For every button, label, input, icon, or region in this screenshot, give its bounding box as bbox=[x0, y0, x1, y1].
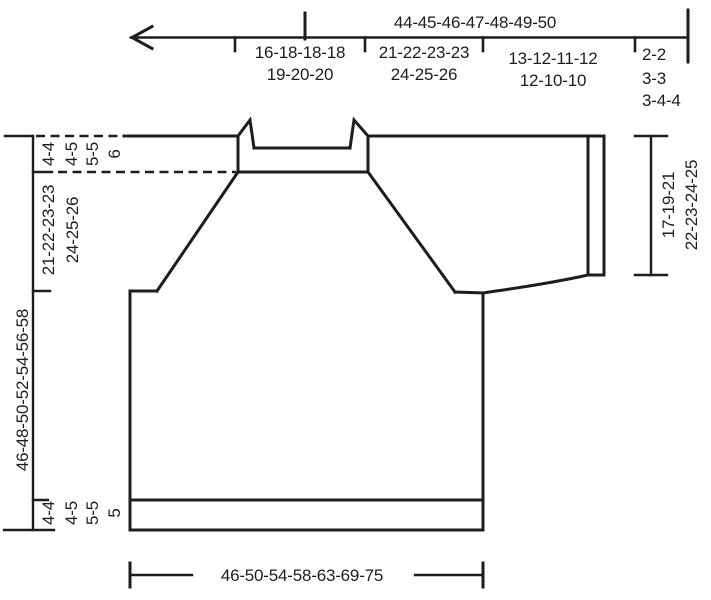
sleeve-measure-part2-label: 22-23-24-25 bbox=[682, 160, 701, 250]
neck-depth-part2-label: 4-5 bbox=[62, 142, 81, 166]
total-length-label: 46-48-50-52-54-56-58 bbox=[13, 309, 32, 471]
right-measure-bar: 17-19-21 22-23-24-25 bbox=[635, 136, 701, 275]
garment-outline bbox=[124, 120, 604, 530]
pattern-schematic-page: 44-45-46-47-48-49-50 16-18-18-18 19-20-2… bbox=[0, 0, 711, 600]
segment1-row2-label: 19-20-20 bbox=[267, 65, 333, 84]
armpit-right bbox=[455, 292, 483, 293]
neck-depth-part3-label: 5-5 bbox=[83, 142, 102, 166]
segment4-row3-label: 3-4-4 bbox=[642, 91, 681, 110]
bottom-rib-part2-label: 4-5 bbox=[62, 501, 81, 525]
segment4-row2-label: 3-3 bbox=[642, 69, 666, 88]
sleeve-underarm-curve bbox=[483, 275, 588, 293]
bottom-rib-part1-label: 4-4 bbox=[39, 501, 58, 525]
segment1-row1-label: 16-18-18-18 bbox=[255, 43, 345, 62]
top-total-width-label: 44-45-46-47-48-49-50 bbox=[394, 13, 556, 32]
bottom-width-label: 46-50-54-58-63-69-75 bbox=[221, 566, 383, 585]
raglan-depth-part2-label: 24-25-26 bbox=[63, 197, 82, 263]
top-width-arrow: 44-45-46-47-48-49-50 16-18-18-18 19-20-2… bbox=[131, 10, 688, 110]
neck-left-horn bbox=[238, 120, 254, 148]
neck-right-horn bbox=[350, 120, 368, 148]
bottom-rib-part3-label: 5-5 bbox=[83, 501, 102, 525]
segment3-row1-label: 13-12-11-12 bbox=[508, 49, 597, 68]
segment4-row1-label: 2-2 bbox=[642, 45, 666, 64]
bottom-width-measure: 46-50-54-58-63-69-75 bbox=[130, 563, 483, 587]
sleeve-measure-part1-label: 17-19-21 bbox=[659, 172, 678, 238]
raglan-depth-part1-label: 21-22-23-23 bbox=[39, 185, 58, 275]
neck-depth-part1-label: 4-4 bbox=[39, 142, 58, 166]
raglan-right bbox=[368, 172, 455, 292]
bottom-rib-part4-label: 5 bbox=[105, 508, 124, 517]
segment3-row2-label: 12-10-10 bbox=[520, 71, 586, 90]
left-measure-bar: 4-4 4-5 5-5 6 21-22-23-23 24-25-26 46-48… bbox=[4, 136, 124, 530]
segment2-row2-label: 24-25-26 bbox=[391, 65, 457, 84]
neck-depth-part4-label: 6 bbox=[105, 149, 124, 158]
raglan-left bbox=[157, 172, 238, 291]
segment2-row1-label: 21-22-23-23 bbox=[379, 43, 469, 62]
pattern-schematic-drawing: 44-45-46-47-48-49-50 16-18-18-18 19-20-2… bbox=[0, 0, 711, 600]
